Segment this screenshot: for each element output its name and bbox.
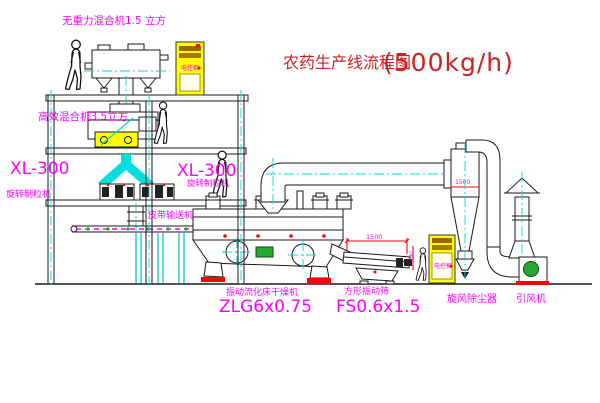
vibration-motor (256, 247, 273, 257)
y-chute (101, 154, 151, 186)
gravity-free-mixer (66, 40, 171, 95)
label-granulator-right-name: 旋转制粒机 (187, 178, 230, 189)
dryer-foot-pad (201, 277, 225, 282)
control-cabinet-2: 电控柜 (429, 235, 455, 283)
granulator-left (100, 184, 134, 200)
cabinet-text: 电控柜 (434, 262, 452, 270)
indicator-light-icon (450, 265, 453, 268)
sieve-length-dim: 1500 (366, 233, 383, 241)
label-sieve-model: FS0.6x1.5 (336, 297, 420, 317)
label-granulator-left-model: XL-300 (10, 159, 69, 179)
label-granulator-right-model: XL-300 (177, 161, 236, 181)
flow-diagram-canvas: 电控柜 (0, 0, 600, 403)
control-cabinet-1: 电控柜 (176, 42, 204, 95)
worker-figure (66, 40, 82, 89)
conveyor-legs (136, 233, 184, 283)
label-belt-conveyor: 皮带输送机 (148, 209, 193, 221)
label-fan: 引风机 (516, 292, 546, 305)
cabinet-text: 电控柜 (181, 64, 199, 72)
roof-slab (46, 95, 248, 101)
indicator-light-icon (196, 44, 200, 47)
label-mid-mixer: 高效混合机3.5立方 (38, 110, 128, 123)
granulator-right (140, 184, 174, 200)
mixer-motor (139, 117, 156, 131)
exhaust-duct (258, 158, 458, 213)
label-dryer-model: ZLG6x0.75 (219, 297, 312, 317)
belt-conveyor (71, 226, 210, 283)
belt-idlers (86, 227, 187, 230)
fan-base (516, 281, 549, 285)
diagram-title-capacity: (500kg/h) (383, 48, 514, 77)
cyclone-dim-text: 1500 (455, 179, 470, 186)
production-line-drawing: 电控柜 (0, 0, 600, 403)
fan-motor (524, 262, 539, 277)
label-top-mixer: 无重力混合机1.5 立方 (62, 14, 166, 27)
discharge-downpipe (127, 203, 145, 232)
sieve-base (356, 268, 398, 281)
vibrating-sieve: 1500 740 (343, 233, 413, 284)
worker-figure (416, 248, 426, 281)
label-cyclone: 旋风除尘器 (447, 292, 497, 305)
sieve-height-dim: 740 (407, 250, 413, 261)
label-granulator-left-name: 旋转制粒机 (6, 188, 51, 200)
induced-draft-fan (516, 257, 549, 285)
dryer-foot-pad (307, 278, 331, 283)
label-sieve-name: 方形振动筛 (344, 285, 389, 297)
